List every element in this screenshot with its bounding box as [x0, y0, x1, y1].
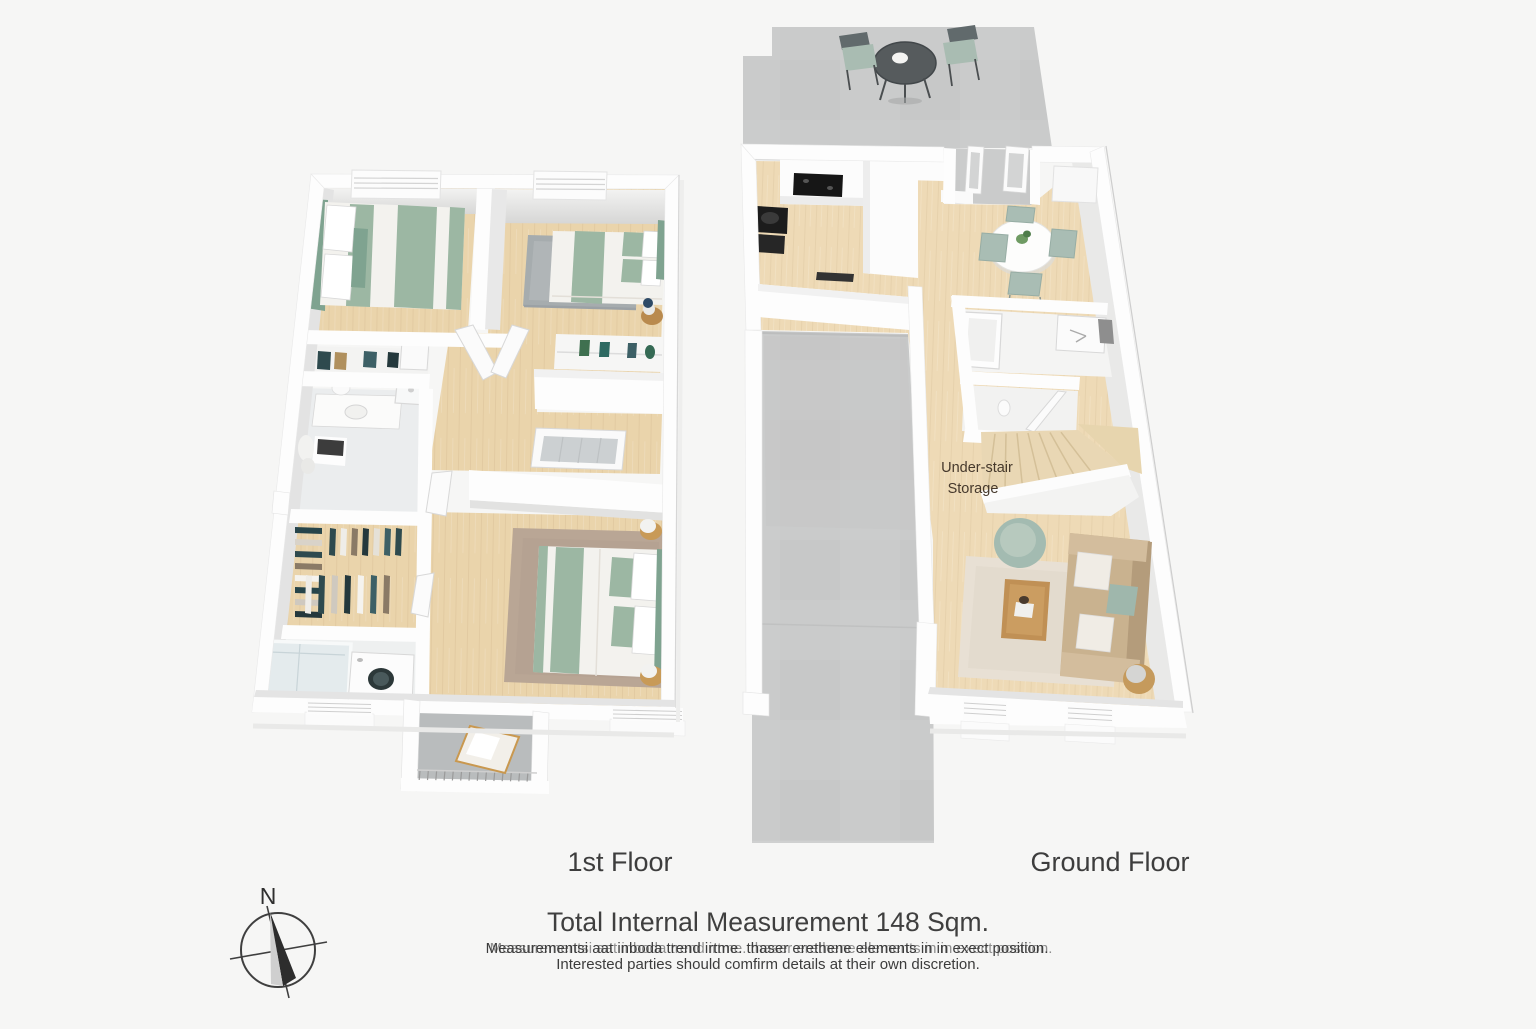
svg-text:1st Floor: 1st Floor	[567, 847, 672, 877]
svg-text:Under-stair: Under-stair	[941, 460, 1013, 476]
svg-text:Measurementsi aat inboda trend: Measurementsi aat inboda trend irtme. th…	[486, 940, 1049, 957]
svg-text:Interested parties should comf: Interested parties should comfirm detail…	[556, 956, 980, 973]
svg-text:Ground Floor: Ground Floor	[1030, 847, 1189, 877]
svg-text:Storage: Storage	[948, 481, 999, 497]
svg-text:N: N	[260, 883, 277, 909]
svg-text:Total Internal Measurement 148: Total Internal Measurement 148 Sqm.	[547, 907, 989, 937]
